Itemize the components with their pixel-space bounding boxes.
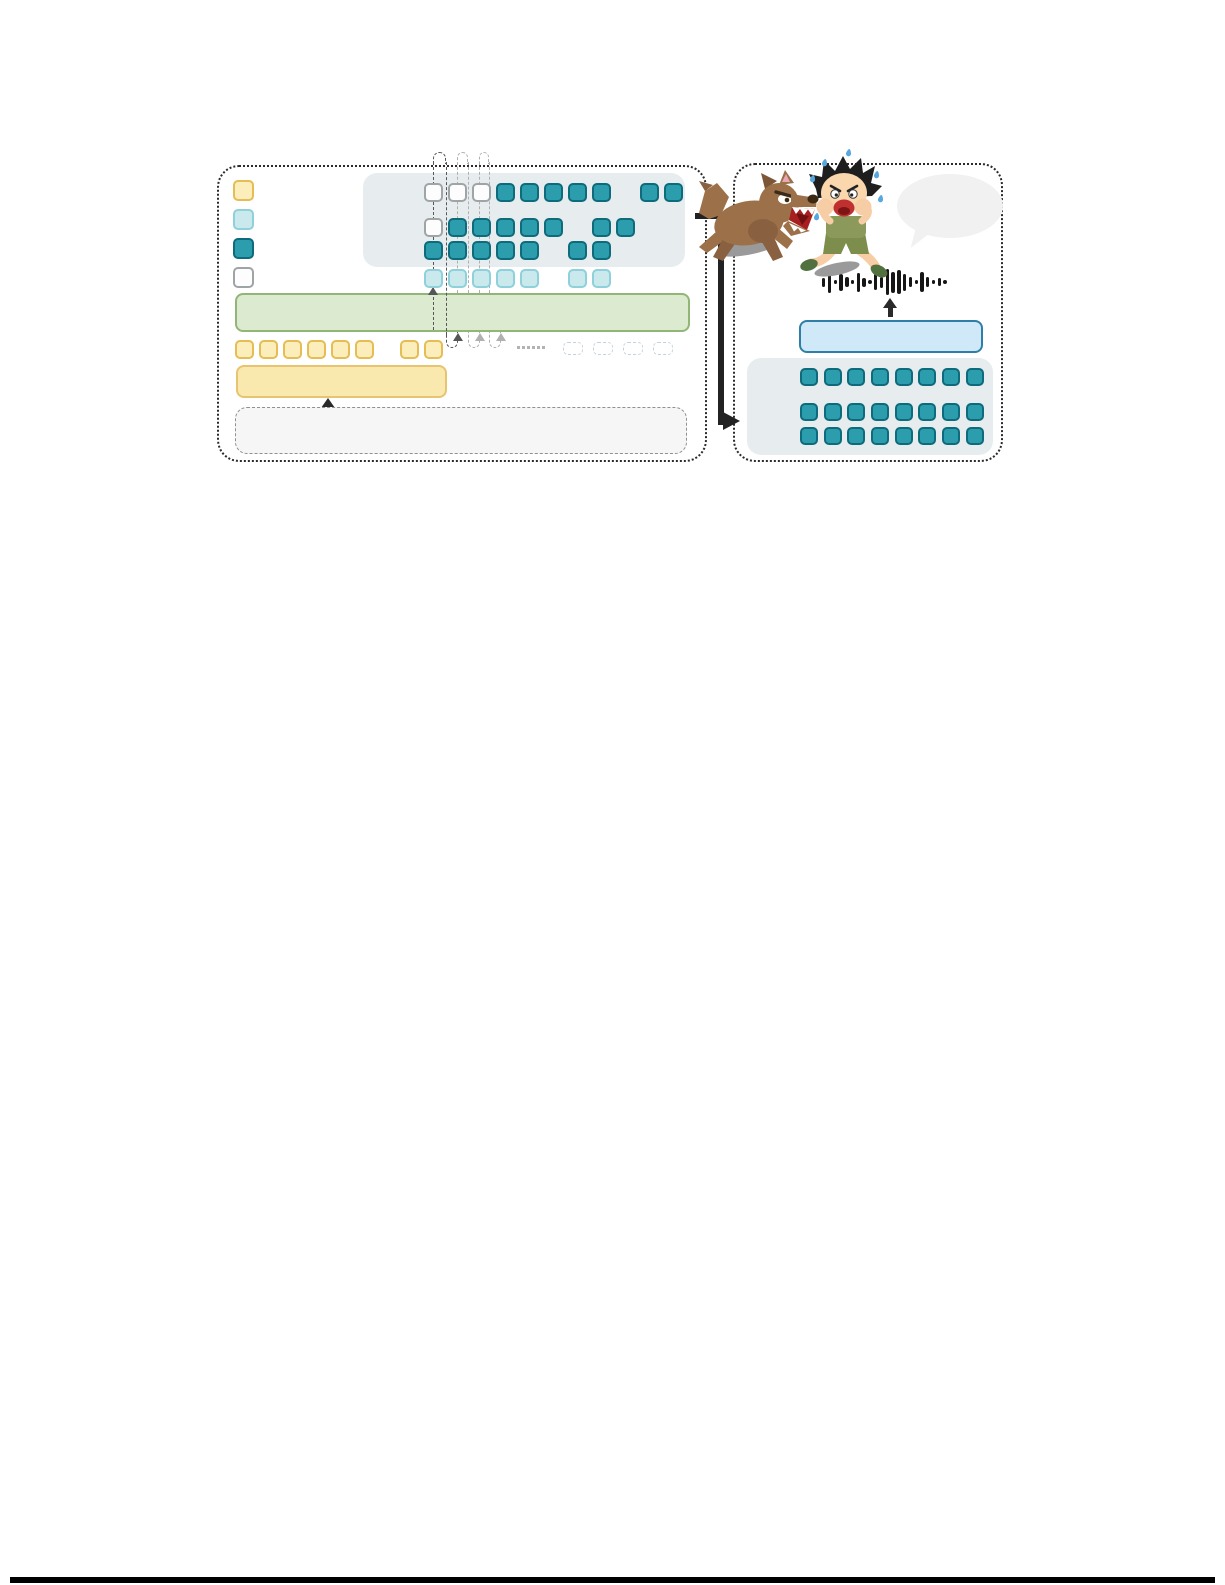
legend-swatch-cyan (233, 209, 254, 230)
connector-arrowhead-icon (723, 412, 740, 430)
speech-token (824, 403, 842, 421)
legend-swatch-yellow (233, 180, 254, 201)
matrix-token (592, 241, 611, 260)
matrix-token (640, 183, 659, 202)
speech-token (800, 403, 818, 421)
speech-token (918, 427, 936, 445)
matrix-token (496, 218, 515, 237)
waveform-bar (834, 280, 837, 284)
up-arrow-stem (888, 306, 893, 317)
input-token (259, 340, 278, 359)
waveform-bar (822, 278, 825, 287)
matrix-token (472, 218, 491, 237)
waveform-bar (915, 280, 918, 284)
matrix-token (496, 183, 515, 202)
speech-token (871, 403, 889, 421)
figure-canvas (0, 0, 1225, 1585)
matrix-token (520, 241, 539, 260)
dashed-input-box (235, 407, 687, 454)
page-bottom-rule (10, 1577, 1215, 1583)
waveform-bar (932, 280, 935, 284)
waveform-bar (862, 278, 865, 287)
matrix-token (424, 183, 443, 202)
speech-token (824, 368, 842, 386)
input-token (355, 340, 374, 359)
matrix-token (544, 183, 563, 202)
speech-token (966, 403, 984, 421)
matrix-token (448, 241, 467, 260)
matrix-token (448, 218, 467, 237)
output-token (568, 269, 587, 288)
recurrence-arrowhead-icon (475, 333, 485, 341)
output-token (424, 269, 443, 288)
matrix-token (616, 218, 635, 237)
output-token (448, 269, 467, 288)
future-token-placeholder (623, 342, 643, 355)
speech-token (966, 427, 984, 445)
speech-token (895, 427, 913, 445)
speech-token (847, 368, 865, 386)
matrix-token (544, 218, 563, 237)
future-token-placeholder (563, 342, 583, 355)
recurrence-top-arc (433, 152, 446, 164)
speech-token (942, 427, 960, 445)
recurrence-ellipsis-dot (537, 346, 540, 349)
matrix-token (472, 241, 491, 260)
input-token (307, 340, 326, 359)
speech-token (847, 427, 865, 445)
input-token (424, 340, 443, 359)
speech-token (942, 368, 960, 386)
wolf-illustration (697, 173, 819, 267)
waveform-bar (943, 280, 946, 284)
speech-token (800, 368, 818, 386)
green-model-bar (235, 293, 690, 332)
recurrence-ellipsis-dot (522, 346, 525, 349)
waveform-bar (851, 280, 854, 284)
speech-token (871, 368, 889, 386)
matrix-token (520, 183, 539, 202)
input-token (283, 340, 302, 359)
output-token (520, 269, 539, 288)
input-token (235, 340, 254, 359)
recurrence-arrowhead-icon (453, 333, 463, 341)
speech-token (895, 368, 913, 386)
speech-token (847, 403, 865, 421)
legend-swatch-teal (233, 238, 254, 259)
recurrence-top-arc (457, 152, 468, 164)
output-token (472, 269, 491, 288)
input-token (331, 340, 350, 359)
recurrence-ellipsis-dot (527, 346, 530, 349)
output-token (592, 269, 611, 288)
matrix-token (520, 218, 539, 237)
matrix-token (448, 183, 467, 202)
input-token (400, 340, 419, 359)
waveform-bar (880, 277, 883, 288)
matrix-token (424, 218, 443, 237)
recurrence-arrowhead-icon (428, 287, 438, 295)
speech-token (824, 427, 842, 445)
matrix-token (568, 241, 587, 260)
waveform-bar (897, 270, 900, 294)
waveform-bar (891, 272, 894, 293)
recurrence-ellipsis-dot (542, 346, 545, 349)
waveform-bar (903, 274, 906, 291)
waveform-bar (845, 277, 848, 287)
recurrence-line (446, 162, 447, 336)
recurrence-arrowhead-icon (496, 333, 506, 341)
waveform-bar (926, 277, 929, 287)
matrix-token (472, 183, 491, 202)
recurrence-top-arc (479, 152, 489, 164)
matrix-token (664, 183, 683, 202)
waveform-bar (938, 278, 941, 286)
speech-bubble (897, 174, 1003, 238)
recurrence-ellipsis-dot (532, 346, 535, 349)
matrix-token (424, 241, 443, 260)
future-token-placeholder (653, 342, 673, 355)
speech-token (918, 368, 936, 386)
future-token-placeholder (593, 342, 613, 355)
matrix-token (592, 218, 611, 237)
recurrence-ellipsis-dot (517, 346, 520, 349)
speech-token (942, 403, 960, 421)
waveform-bar (909, 277, 912, 287)
speech-token (918, 403, 936, 421)
yellow-input-bar (236, 365, 447, 398)
speech-token (871, 427, 889, 445)
blue-decoder-bar (799, 320, 983, 353)
waveform-bar (920, 272, 923, 292)
speech-token (895, 403, 913, 421)
waveform-bar (868, 280, 871, 284)
matrix-token (496, 241, 515, 260)
output-token (496, 269, 515, 288)
matrix-token (568, 183, 587, 202)
speech-token (966, 368, 984, 386)
recurrence-line (468, 162, 469, 293)
legend-swatch-white (233, 267, 254, 288)
running-boy-illustration (802, 155, 890, 277)
speech-token (800, 427, 818, 445)
matrix-token (592, 183, 611, 202)
